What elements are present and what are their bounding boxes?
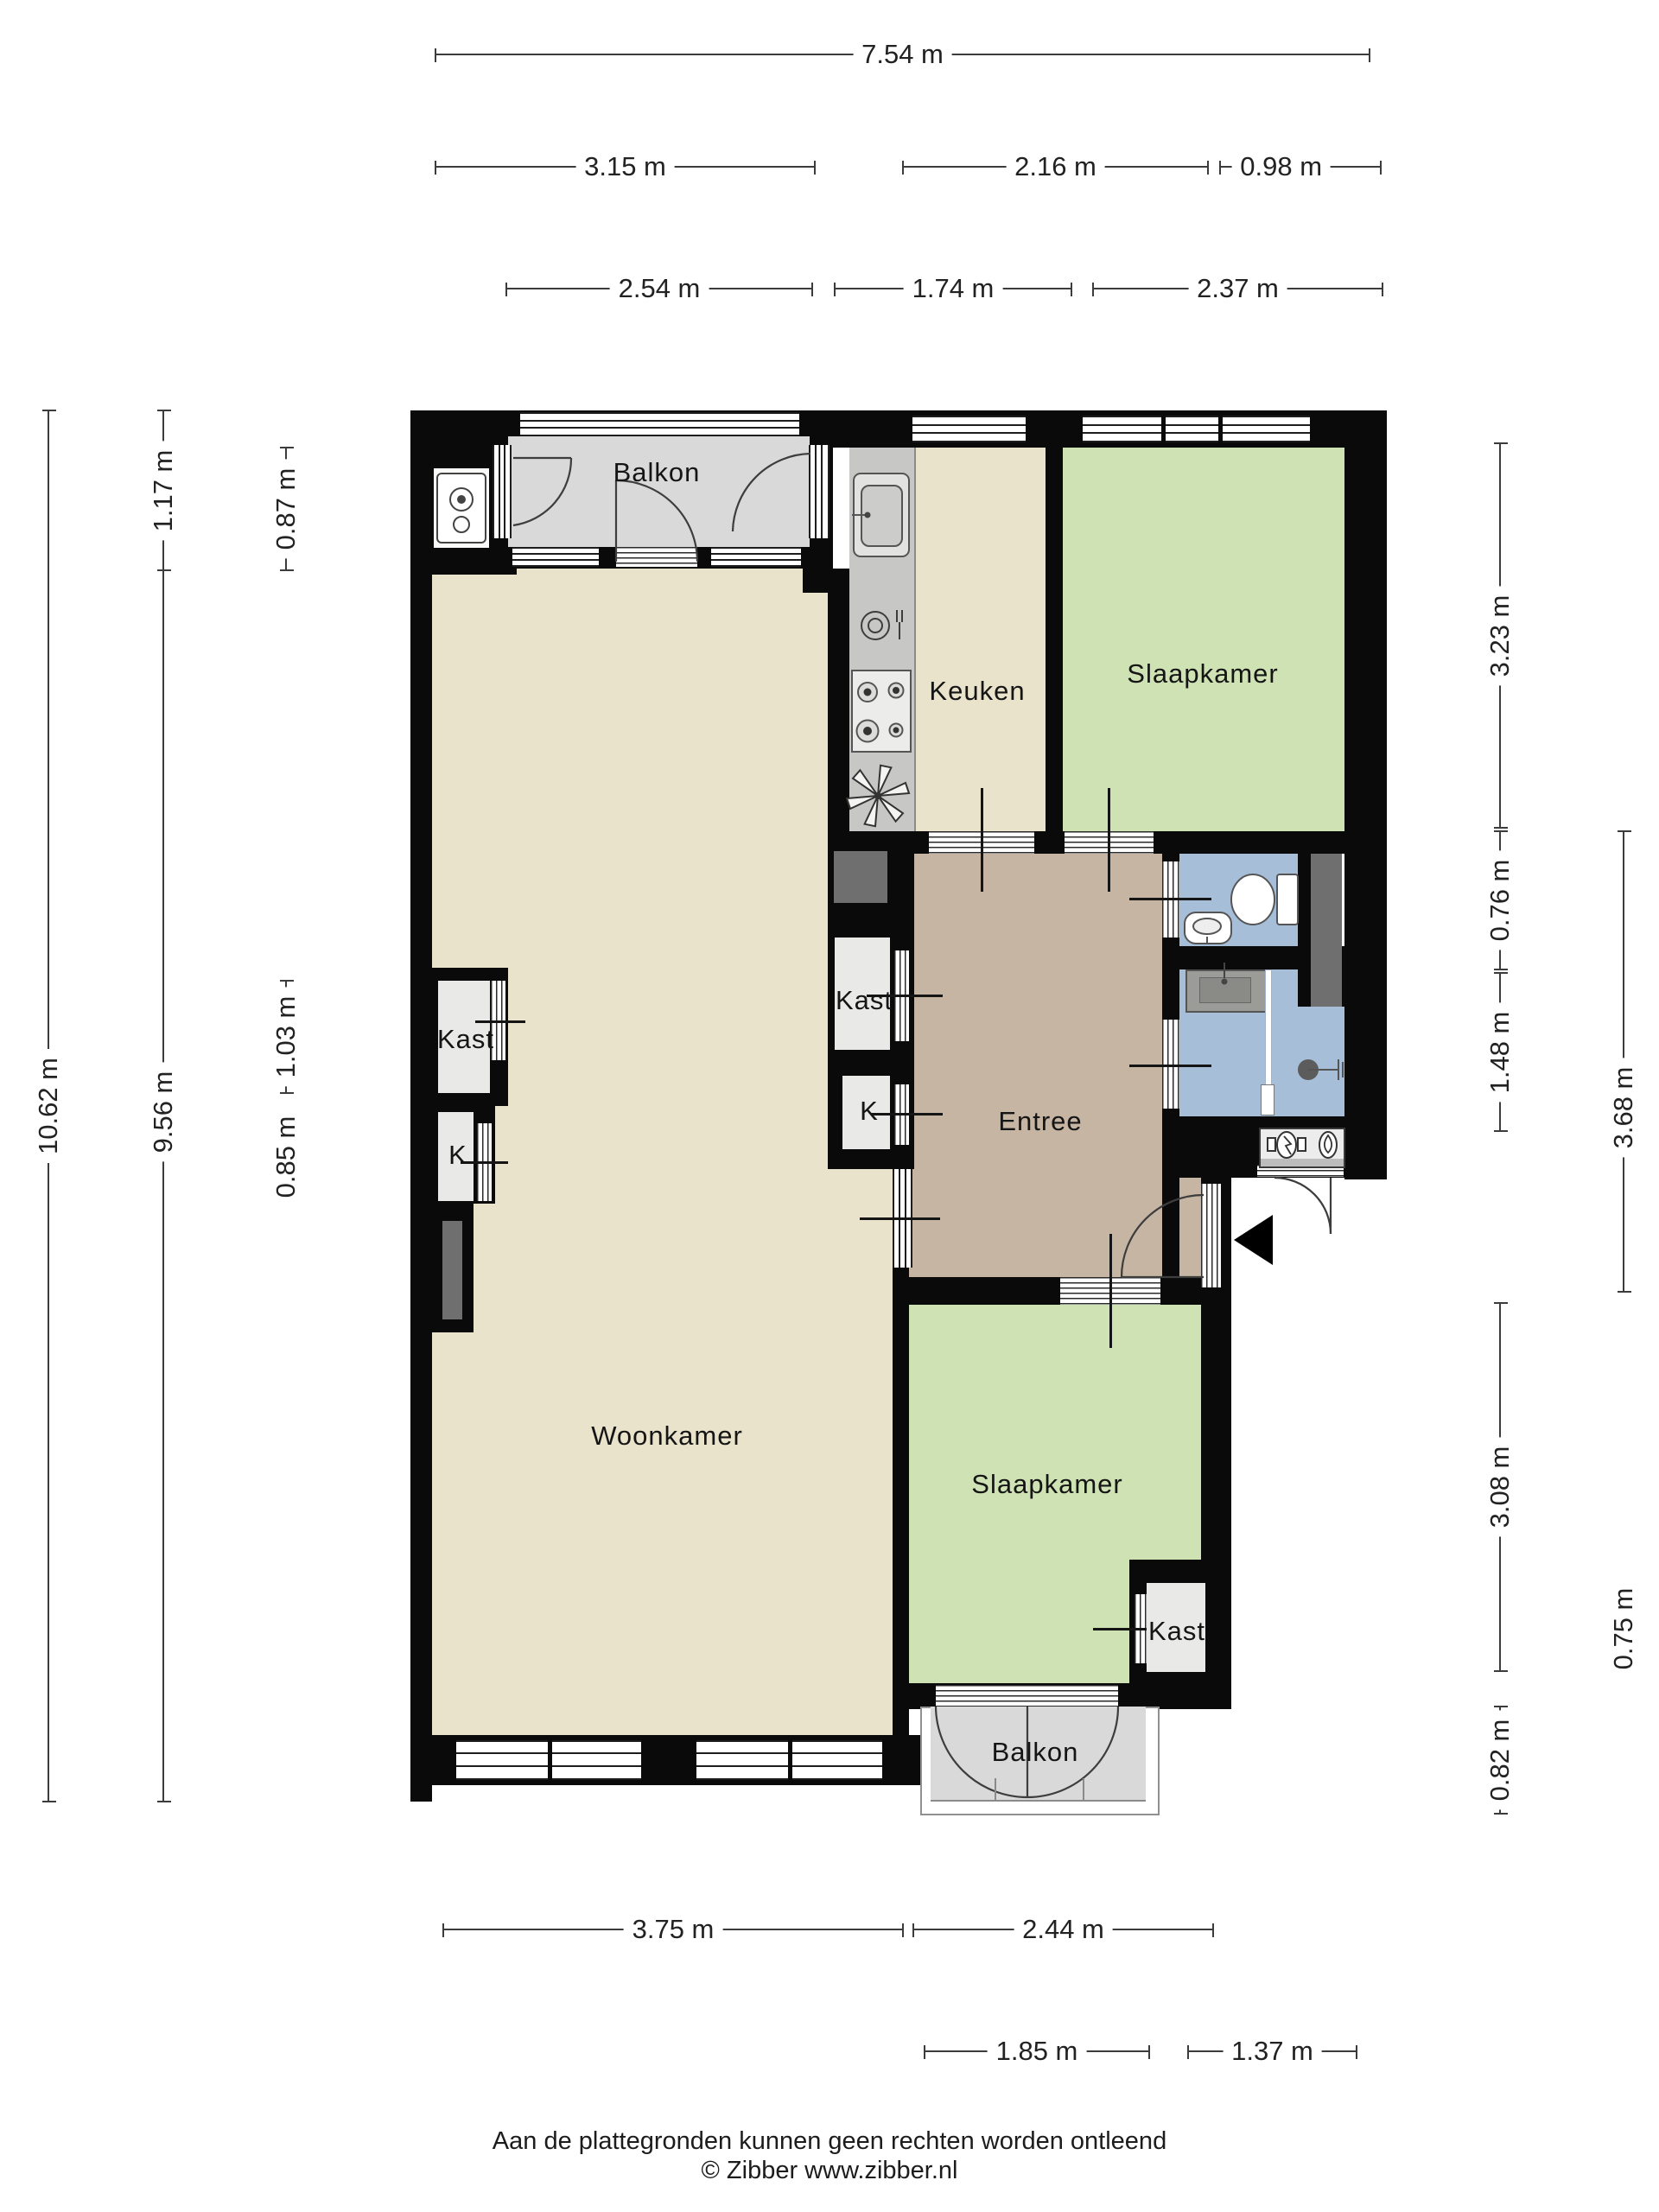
balcony-railing-window	[520, 412, 799, 436]
disclaimer-text: Aan de plattegronden kunnen geen rechten…	[0, 2127, 1659, 2156]
window-mullion	[548, 1740, 552, 1780]
room-label-balkon-top: Balkon	[613, 457, 701, 488]
room-label-woonkamer: Woonkamer	[591, 1421, 743, 1452]
dimension-label: 2.16 m	[1006, 151, 1105, 182]
window	[912, 416, 1026, 442]
meter-cupboard-sill	[1261, 1159, 1344, 1166]
wall-segment	[893, 1277, 1210, 1305]
keuken-balcony-door	[809, 445, 829, 538]
room-label-balkon-bottom: Balkon	[992, 1737, 1079, 1768]
dimension: 3.75 m	[443, 1929, 903, 1930]
door-tick	[1129, 1065, 1211, 1067]
chimney-shaft	[442, 1221, 462, 1319]
dimension-label: 0.87 m	[270, 460, 302, 559]
dimension-label: 1.85 m	[988, 2036, 1087, 2067]
dimension-label: 0.98 m	[1231, 151, 1331, 182]
front-door-frame	[1201, 1184, 1221, 1287]
dimension-label: 3.68 m	[1608, 1058, 1639, 1157]
room-badkamer-ext	[1298, 1007, 1345, 1116]
dimension-label: 3.08 m	[1484, 1438, 1516, 1537]
dimension-label: 9.56 m	[148, 1063, 179, 1162]
window-mullion	[1161, 416, 1166, 442]
dimension: 0.82 m	[1499, 1707, 1501, 1814]
door-tick	[860, 1217, 940, 1220]
dimension-label: 3.15 m	[575, 151, 675, 182]
room-woonkamer-ext	[828, 1169, 893, 1735]
meter-cupboard	[1259, 1128, 1345, 1168]
room-entree	[909, 854, 1162, 1277]
shower-screen-handle	[1261, 1084, 1274, 1116]
dimension-label: 3.75 m	[624, 1914, 723, 1945]
dimension: 1.17 m	[162, 410, 164, 570]
room-slaapkamer-top	[1063, 448, 1344, 831]
dimension: 10.62 m	[48, 410, 49, 1802]
french-doors-balkon	[936, 1685, 1118, 1707]
dimension: 1.74 m	[835, 288, 1071, 289]
wall-segment	[1046, 410, 1063, 831]
dimension-label: 0.85 m	[270, 1107, 302, 1206]
dimension: 1.03 m	[285, 981, 287, 1093]
room-label-kast-bottom: Kast	[1148, 1616, 1205, 1647]
room-label-slaapkamer-top: Slaapkamer	[1127, 658, 1278, 690]
dimension-label: 1.74 m	[904, 273, 1003, 304]
room-label-kast-left: Kast	[437, 1024, 494, 1055]
door-tick	[1109, 1234, 1112, 1348]
washbasin-counter	[1185, 969, 1267, 1013]
washbasin-inner	[1199, 977, 1251, 1003]
room-label-k-left: K	[448, 1140, 467, 1171]
dimension: 9.56 m	[162, 570, 164, 1802]
dimension: 3.23 m	[1499, 443, 1501, 828]
window-mullion	[1218, 416, 1223, 442]
door-tick	[1108, 788, 1110, 892]
door-opening	[616, 547, 697, 567]
door-tick	[871, 1113, 943, 1116]
entrance-arrow-icon	[1234, 1215, 1273, 1265]
dimension-label: 2.37 m	[1188, 273, 1287, 304]
window	[711, 547, 801, 567]
dimension: 3.08 m	[1499, 1303, 1501, 1671]
wall-segment	[828, 569, 849, 831]
dimension: 1.85 m	[925, 2050, 1149, 2052]
dimension-label: 0.82 m	[1484, 1711, 1516, 1810]
dimension: 0.75 m	[1623, 1583, 1624, 1675]
dimension-label: 2.54 m	[610, 273, 709, 304]
window	[1083, 416, 1310, 442]
dimension-label: 3.23 m	[1484, 586, 1516, 685]
room-label-keuken: Keuken	[929, 676, 1025, 707]
dimension: 0.85 m	[285, 1112, 287, 1201]
dimension: 7.54 m	[435, 54, 1370, 55]
dimension: 1.48 m	[1499, 973, 1501, 1131]
dimension-label: 2.44 m	[1014, 1914, 1113, 1945]
door-tick	[475, 1020, 525, 1023]
wall-segment	[1298, 854, 1311, 946]
shaft	[834, 851, 887, 903]
dimension-label: 1.17 m	[148, 441, 179, 540]
floor-plan-canvas: Balkon Keuken Slaapkamer Kast K Entree K…	[0, 0, 1659, 2212]
door-tick	[461, 1161, 508, 1164]
room-keuken	[914, 448, 1046, 831]
door-tick	[1129, 898, 1211, 900]
room-label-entree: Entree	[998, 1106, 1082, 1137]
dimension-label: 10.62 m	[33, 1049, 64, 1163]
dimension-label: 0.76 m	[1484, 851, 1516, 950]
boiler-closet-door	[493, 445, 512, 538]
door-tick	[1093, 1628, 1147, 1630]
room-label-k-mid: K	[860, 1096, 879, 1127]
dimension: 3.68 m	[1623, 831, 1624, 1292]
room-label-kast-mid: Kast	[836, 985, 893, 1016]
room-balkon-top	[508, 436, 810, 547]
dimension: 0.76 m	[1499, 831, 1501, 969]
shaft	[1311, 854, 1342, 1007]
door-arc	[1274, 1178, 1331, 1234]
dimension-label: 1.37 m	[1223, 2036, 1322, 2067]
room-label-slaapkamer-bottom: Slaapkamer	[971, 1469, 1122, 1500]
dimension-label: 0.75 m	[1608, 1580, 1639, 1679]
dimension: 0.98 m	[1220, 166, 1381, 168]
dimension-label: 7.54 m	[853, 39, 952, 70]
dimension-label: 1.48 m	[1484, 1002, 1516, 1102]
window	[512, 547, 599, 567]
window-mullion	[788, 1740, 792, 1780]
door-tick	[981, 788, 983, 892]
dimension: 2.54 m	[506, 288, 812, 289]
boiler-closet-floor	[434, 468, 489, 548]
kitchen-counter	[849, 448, 916, 831]
dimension: 2.37 m	[1093, 288, 1382, 289]
dimension-label: 1.03 m	[270, 988, 302, 1087]
dimension: 3.15 m	[435, 166, 815, 168]
copyright-text: © Zibber www.zibber.nl	[0, 2157, 1659, 2185]
dimension: 2.16 m	[903, 166, 1208, 168]
wall-segment	[1344, 410, 1387, 1179]
dimension: 1.37 m	[1188, 2050, 1357, 2052]
dimension: 2.44 m	[913, 1929, 1213, 1930]
dimension: 0.87 m	[285, 448, 287, 570]
